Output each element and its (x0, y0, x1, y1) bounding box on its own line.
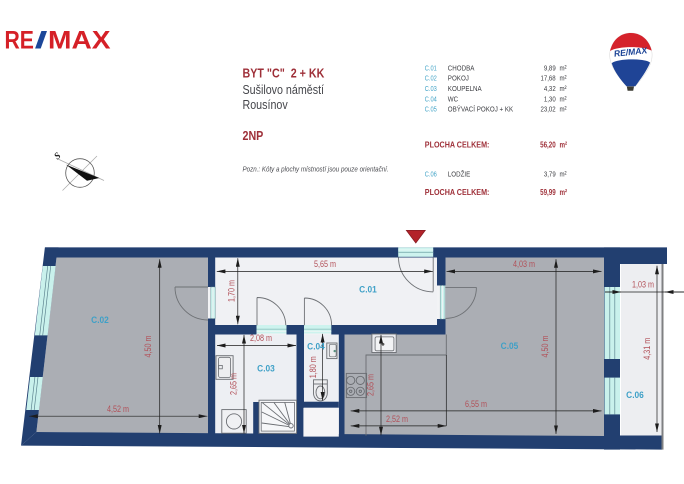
svg-text:WC: WC (448, 96, 458, 104)
svg-text:C.05: C.05 (425, 106, 437, 114)
svg-text:BYT "C" 2 + KK: BYT "C" 2 + KK (243, 67, 325, 81)
svg-text:CHODBA: CHODBA (448, 65, 475, 73)
svg-text:m²: m² (560, 171, 568, 179)
svg-text:4,52 m: 4,52 m (107, 404, 129, 414)
svg-text:3,79: 3,79 (544, 171, 556, 179)
svg-text:C.06: C.06 (626, 390, 644, 401)
svg-text:C.01: C.01 (425, 65, 437, 73)
svg-text:MAX: MAX (48, 26, 111, 54)
svg-text:LODŽIE: LODŽIE (448, 169, 471, 179)
svg-text:C.03: C.03 (257, 363, 275, 374)
svg-text:1,70 m: 1,70 m (227, 280, 237, 302)
svg-text:C.02: C.02 (425, 75, 437, 83)
svg-text:C.06: C.06 (425, 171, 437, 179)
svg-text:4,50 m: 4,50 m (143, 335, 153, 357)
svg-text:C.01: C.01 (359, 284, 377, 295)
svg-text:C.03: C.03 (425, 85, 437, 93)
svg-text:C.04: C.04 (425, 96, 437, 104)
svg-text:4,32: 4,32 (544, 85, 556, 93)
svg-text:m²: m² (560, 96, 568, 104)
svg-text:m²: m² (560, 142, 568, 150)
svg-text:1,80 m: 1,80 m (308, 356, 318, 378)
svg-text:m²: m² (560, 106, 568, 114)
svg-text:PLOCHA CELKEM:: PLOCHA CELKEM: (425, 140, 490, 149)
svg-text:1,03 m: 1,03 m (632, 280, 654, 290)
svg-text:PLOCHA CELKEM:: PLOCHA CELKEM: (425, 188, 490, 197)
svg-text:2,52 m: 2,52 m (386, 414, 408, 424)
svg-text:m²: m² (560, 85, 568, 93)
svg-text:4,03 m: 4,03 m (513, 259, 535, 269)
svg-text:OBÝVACÍ POKOJ + KK: OBÝVACÍ POKOJ + KK (448, 104, 514, 114)
svg-text:Sušilovo náměstí: Sušilovo náměstí (243, 83, 325, 97)
svg-text:2,65 m: 2,65 m (366, 374, 376, 396)
svg-text:56,20: 56,20 (540, 142, 556, 150)
svg-text:2,65 m: 2,65 m (229, 373, 239, 395)
svg-text:C.05: C.05 (501, 341, 519, 352)
svg-text:17,68: 17,68 (540, 75, 555, 83)
svg-text:59,99: 59,99 (540, 189, 556, 197)
svg-text:4,31 m: 4,31 m (642, 337, 652, 359)
svg-text:KOUPELNA: KOUPELNA (448, 86, 482, 94)
svg-text:POKOJ: POKOJ (448, 75, 469, 83)
svg-text:23,02: 23,02 (540, 106, 555, 114)
svg-text:1,30: 1,30 (544, 96, 556, 104)
svg-text:m²: m² (560, 189, 568, 197)
svg-text:C.04: C.04 (307, 341, 325, 352)
svg-text:m²: m² (560, 65, 568, 73)
svg-text:Pozn.: Kóty a plochy místností: Pozn.: Kóty a plochy místností jsou pouz… (243, 166, 389, 173)
svg-text:9,89: 9,89 (544, 65, 556, 73)
svg-text:2NP: 2NP (243, 129, 264, 143)
svg-text:2,08 m: 2,08 m (250, 333, 272, 343)
svg-text:C.02: C.02 (91, 315, 109, 326)
svg-text:6,55 m: 6,55 m (465, 399, 487, 409)
svg-text:m²: m² (560, 75, 568, 83)
svg-text:5,65 m: 5,65 m (314, 259, 336, 269)
svg-text:4,50 m: 4,50 m (540, 335, 550, 357)
svg-text:RE: RE (5, 26, 34, 54)
svg-text:Rousínov: Rousínov (243, 98, 288, 112)
